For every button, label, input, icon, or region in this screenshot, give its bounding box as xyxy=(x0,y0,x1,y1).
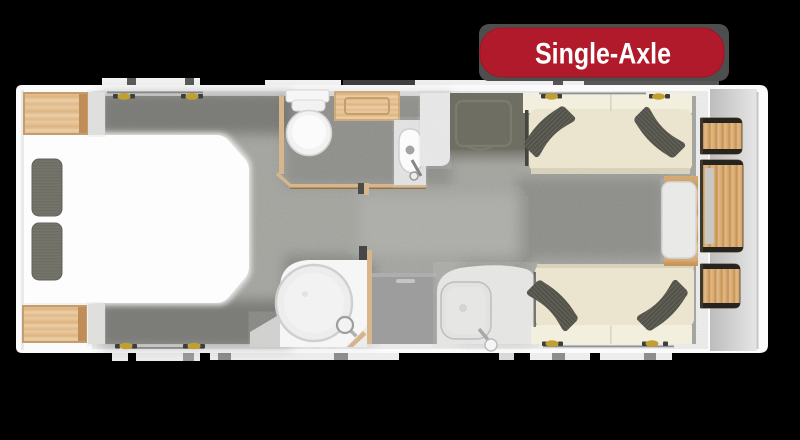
svg-text:Single-Axle: Single-Axle xyxy=(535,38,671,71)
